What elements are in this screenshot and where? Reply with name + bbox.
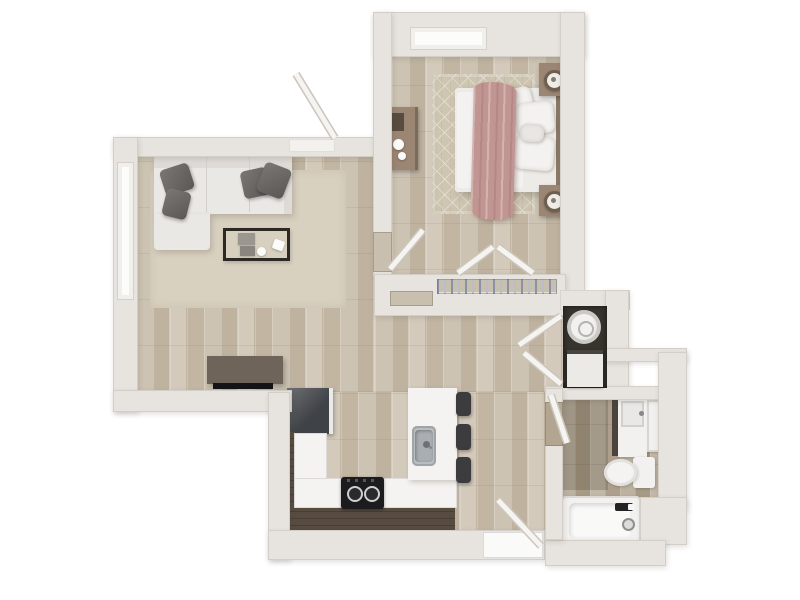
door-leaf-entry: [498, 500, 541, 546]
door-leaf-laundry-bottom: [524, 353, 561, 384]
door-leaf-closet-left: [458, 247, 493, 273]
door-leaf-laundry-top: [519, 316, 561, 345]
door-leaves-overlay: [0, 0, 800, 600]
door-leaf-front: [296, 74, 335, 138]
door-leaf-closet-right: [498, 247, 533, 273]
floorplan-canvas: [0, 0, 800, 600]
door-leaf-bathroom: [551, 395, 567, 443]
door-leaf-bedroom: [390, 230, 423, 269]
